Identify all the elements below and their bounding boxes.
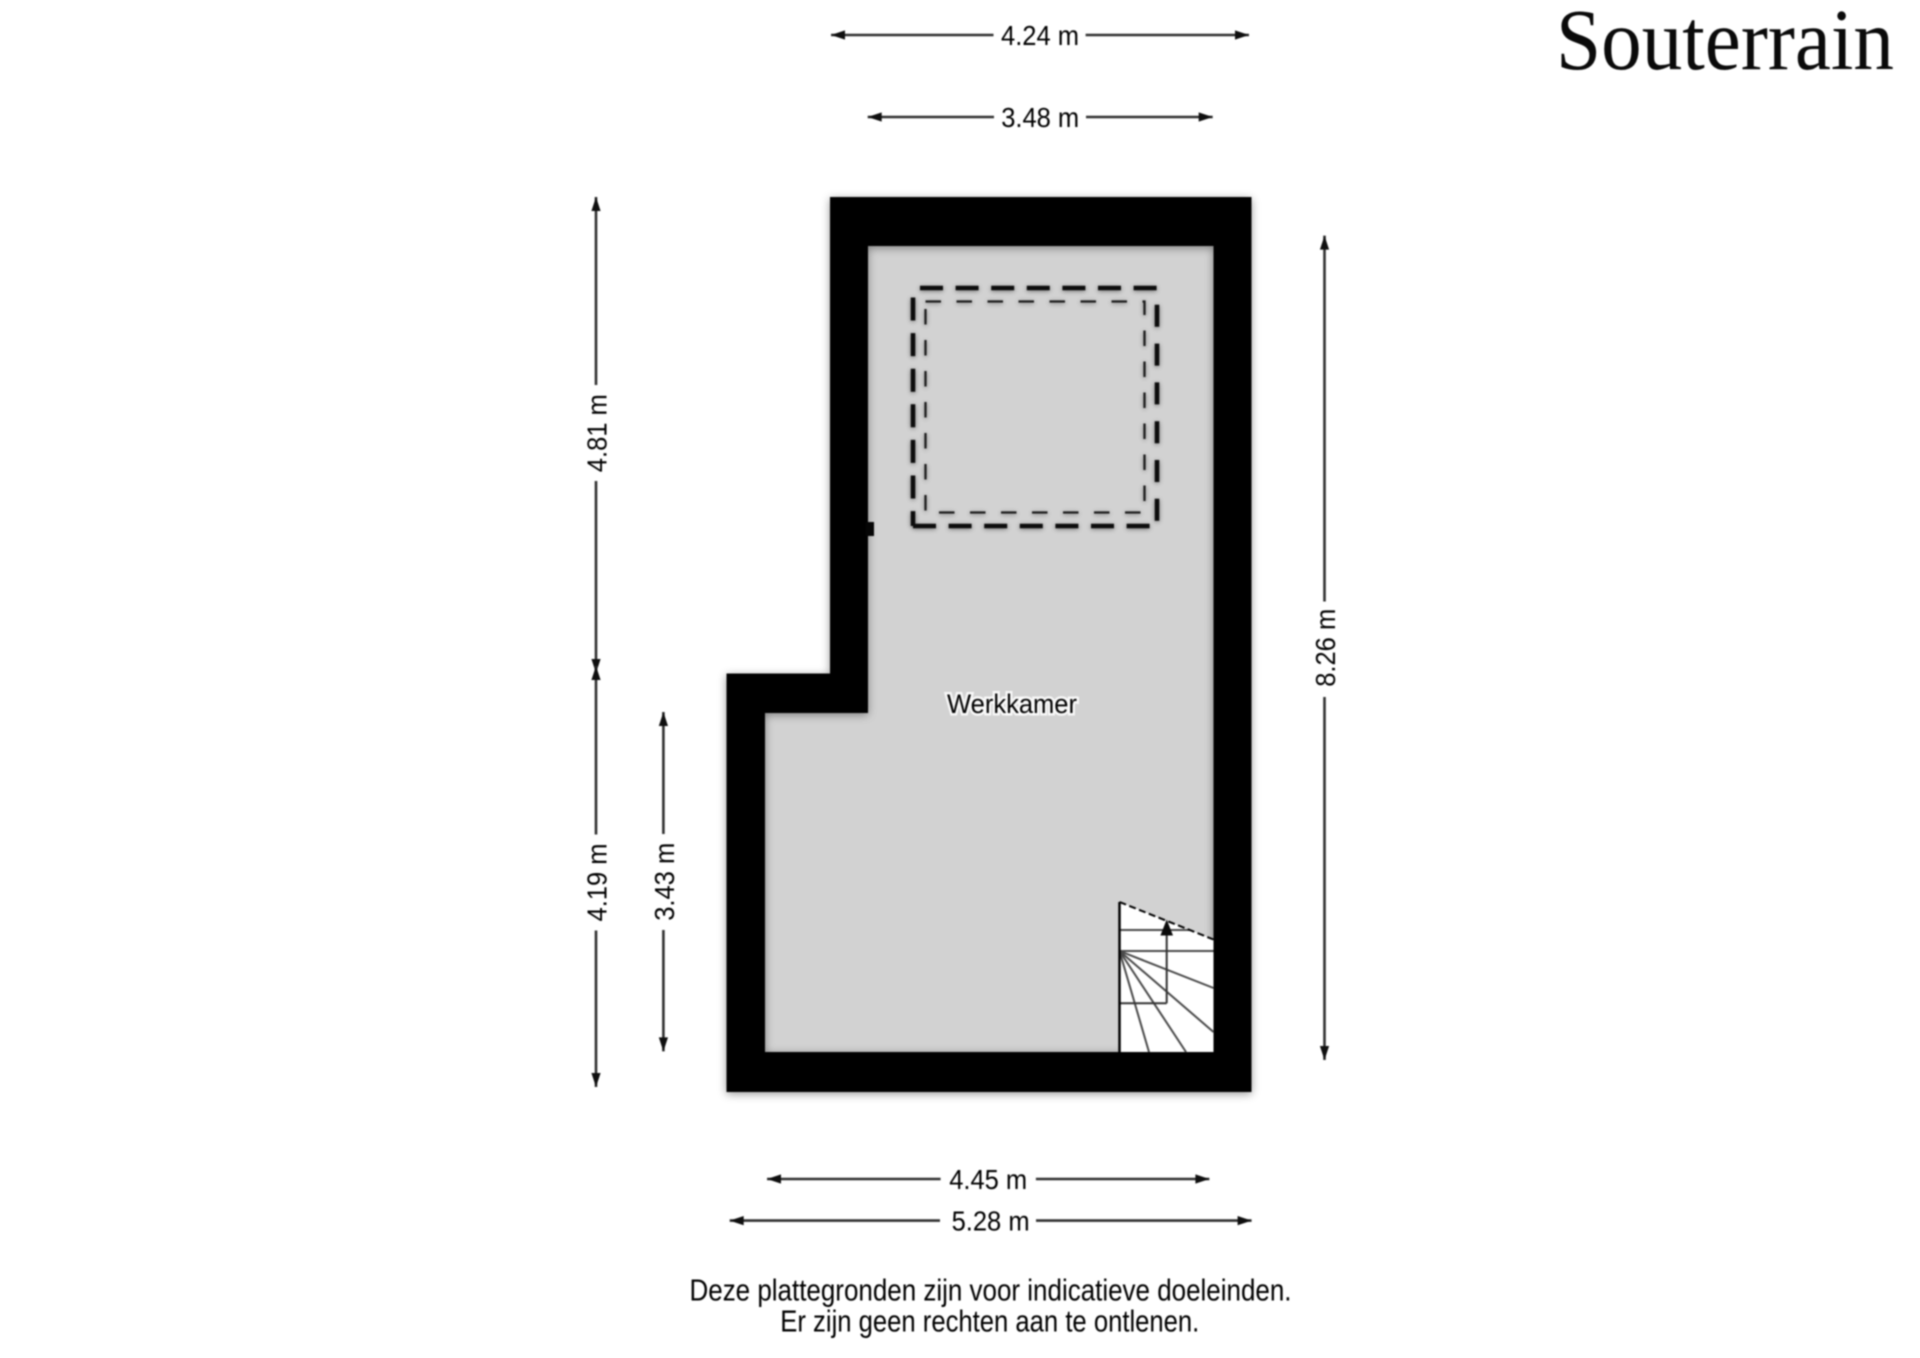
svg-text:3.48 m: 3.48 m — [1001, 102, 1079, 133]
svg-text:8.26 m: 8.26 m — [1310, 609, 1341, 687]
svg-text:4.81 m: 4.81 m — [582, 394, 613, 472]
svg-text:4.45 m: 4.45 m — [949, 1164, 1027, 1195]
svg-text:4.24 m: 4.24 m — [1001, 20, 1079, 51]
svg-text:5.28 m: 5.28 m — [952, 1206, 1030, 1237]
svg-text:Werkkamer: Werkkamer — [947, 689, 1077, 719]
svg-text:Er zijn geen rechten aan te on: Er zijn geen rechten aan te ontlenen. — [780, 1305, 1199, 1339]
svg-text:Souterrain: Souterrain — [1556, 0, 1894, 88]
svg-text:Deze plattegronden zijn voor i: Deze plattegronden zijn voor indicatieve… — [690, 1273, 1292, 1307]
svg-text:3.43 m: 3.43 m — [649, 843, 680, 921]
svg-text:4.19 m: 4.19 m — [582, 844, 613, 922]
